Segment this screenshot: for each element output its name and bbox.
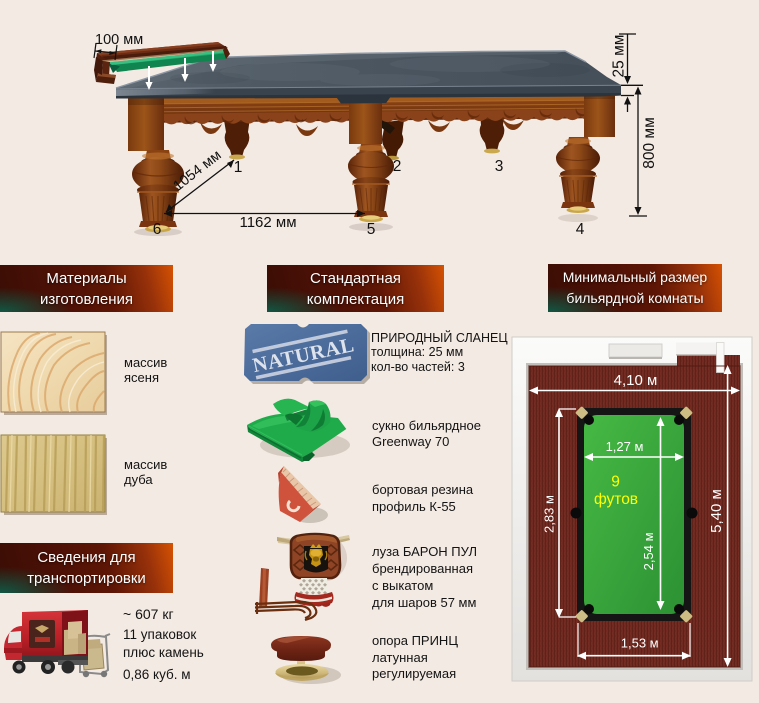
svg-text:3: 3 — [495, 158, 504, 175]
svg-text:800 мм: 800 мм — [641, 117, 658, 168]
svg-text:9: 9 — [611, 474, 620, 491]
svg-text:25 мм: 25 мм — [610, 35, 627, 78]
svg-text:2,54 м: 2,54 м — [641, 532, 656, 570]
svg-text:5,40 м: 5,40 м — [708, 489, 725, 533]
svg-text:футов: футов — [594, 491, 638, 508]
svg-text:2: 2 — [393, 158, 402, 175]
svg-text:1,53 м: 1,53 м — [621, 636, 659, 651]
svg-text:6: 6 — [153, 221, 162, 238]
svg-text:4,10 м: 4,10 м — [614, 372, 658, 389]
svg-text:1,27 м: 1,27 м — [606, 439, 644, 454]
svg-text:4: 4 — [576, 221, 585, 238]
svg-text:2,83 м: 2,83 м — [542, 495, 557, 533]
svg-text:5: 5 — [367, 221, 376, 238]
svg-text:100 мм: 100 мм — [95, 32, 143, 48]
svg-text:1: 1 — [234, 159, 243, 176]
svg-text:1162 мм: 1162 мм — [239, 214, 296, 231]
